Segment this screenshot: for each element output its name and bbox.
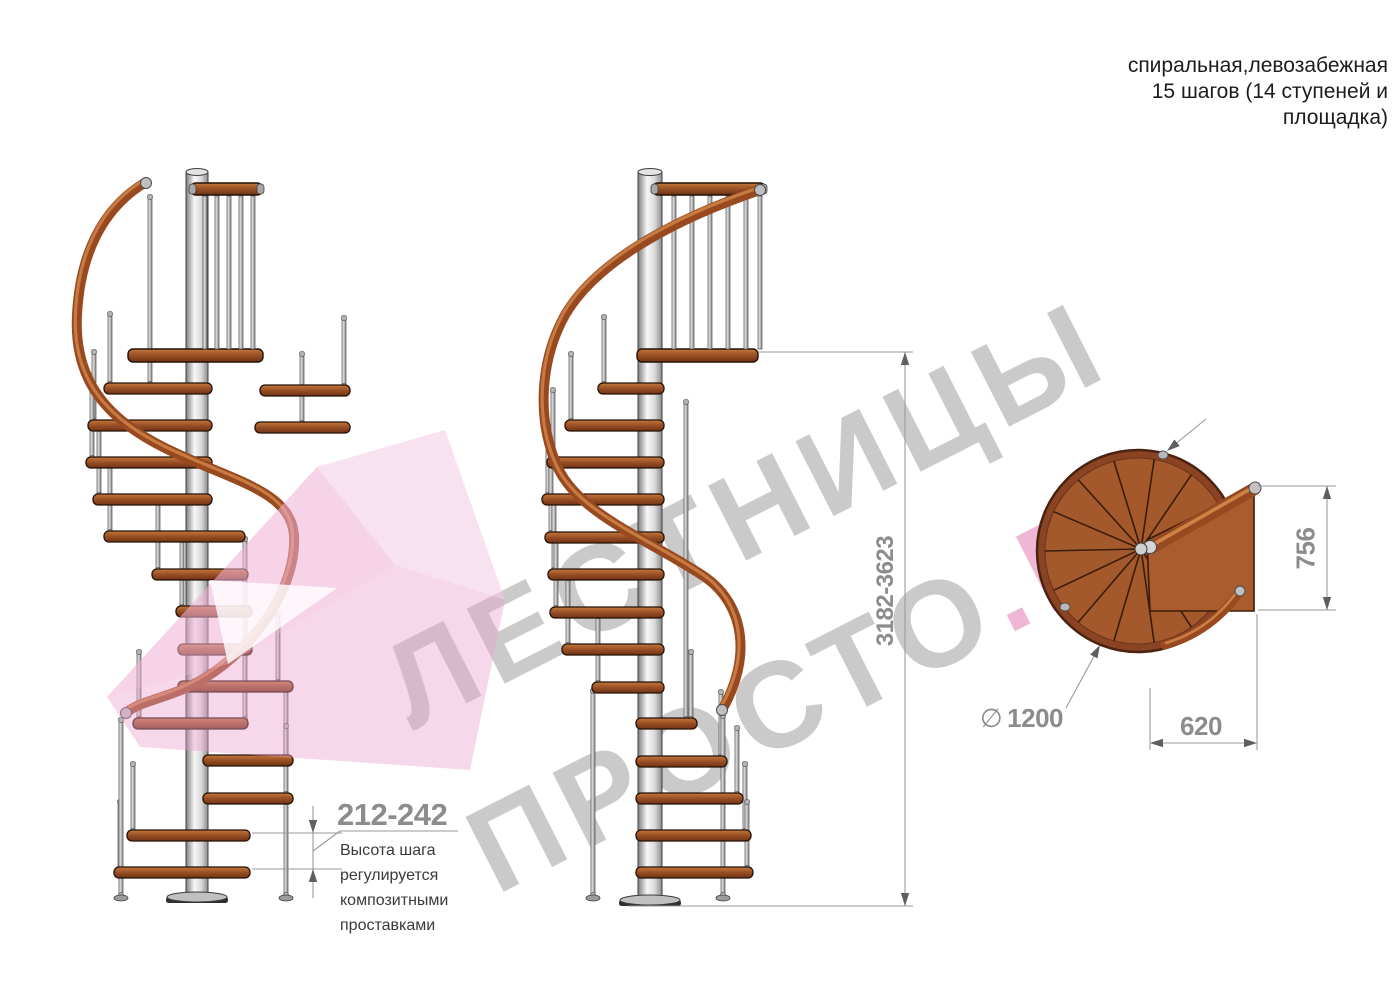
dim-diameter-label: ∅1200 (980, 703, 1063, 734)
title-line: 15 шагов (14 ступеней и (1128, 79, 1388, 105)
title-line: спиральная,левозабежная (1128, 53, 1388, 79)
dim-platform-depth-label: 756 (1291, 509, 1322, 589)
note-line: проставками (340, 913, 448, 938)
note-line: композитными (340, 888, 448, 913)
title-line: площадка) (1128, 105, 1388, 131)
staircase-technical-drawing (0, 0, 1400, 1000)
dim-step-height-label: 212-242 (337, 797, 447, 833)
note-line: регулируется (340, 863, 448, 888)
diameter-symbol: ∅ (980, 703, 1002, 733)
side-view-staircase-drawing (542, 169, 767, 907)
drawing-canvas: ЛЕСТНИЦЫ ПРОСТО.РУ спиральная,левозабежн… (0, 0, 1400, 1000)
top-view-drawing (1037, 450, 1261, 652)
note-line: Высота шага (340, 838, 448, 863)
diameter-value: 1200 (1007, 703, 1063, 733)
dim-total-height-label: 3182-3623 (872, 506, 900, 676)
dim-platform-width-label: 620 (1166, 711, 1236, 742)
dim-step-height-note: Высота шага регулируется композитными пр… (340, 838, 448, 938)
title-block: спиральная,левозабежная 15 шагов (14 сту… (1128, 53, 1388, 131)
pink-arrow-watermark (107, 430, 505, 770)
